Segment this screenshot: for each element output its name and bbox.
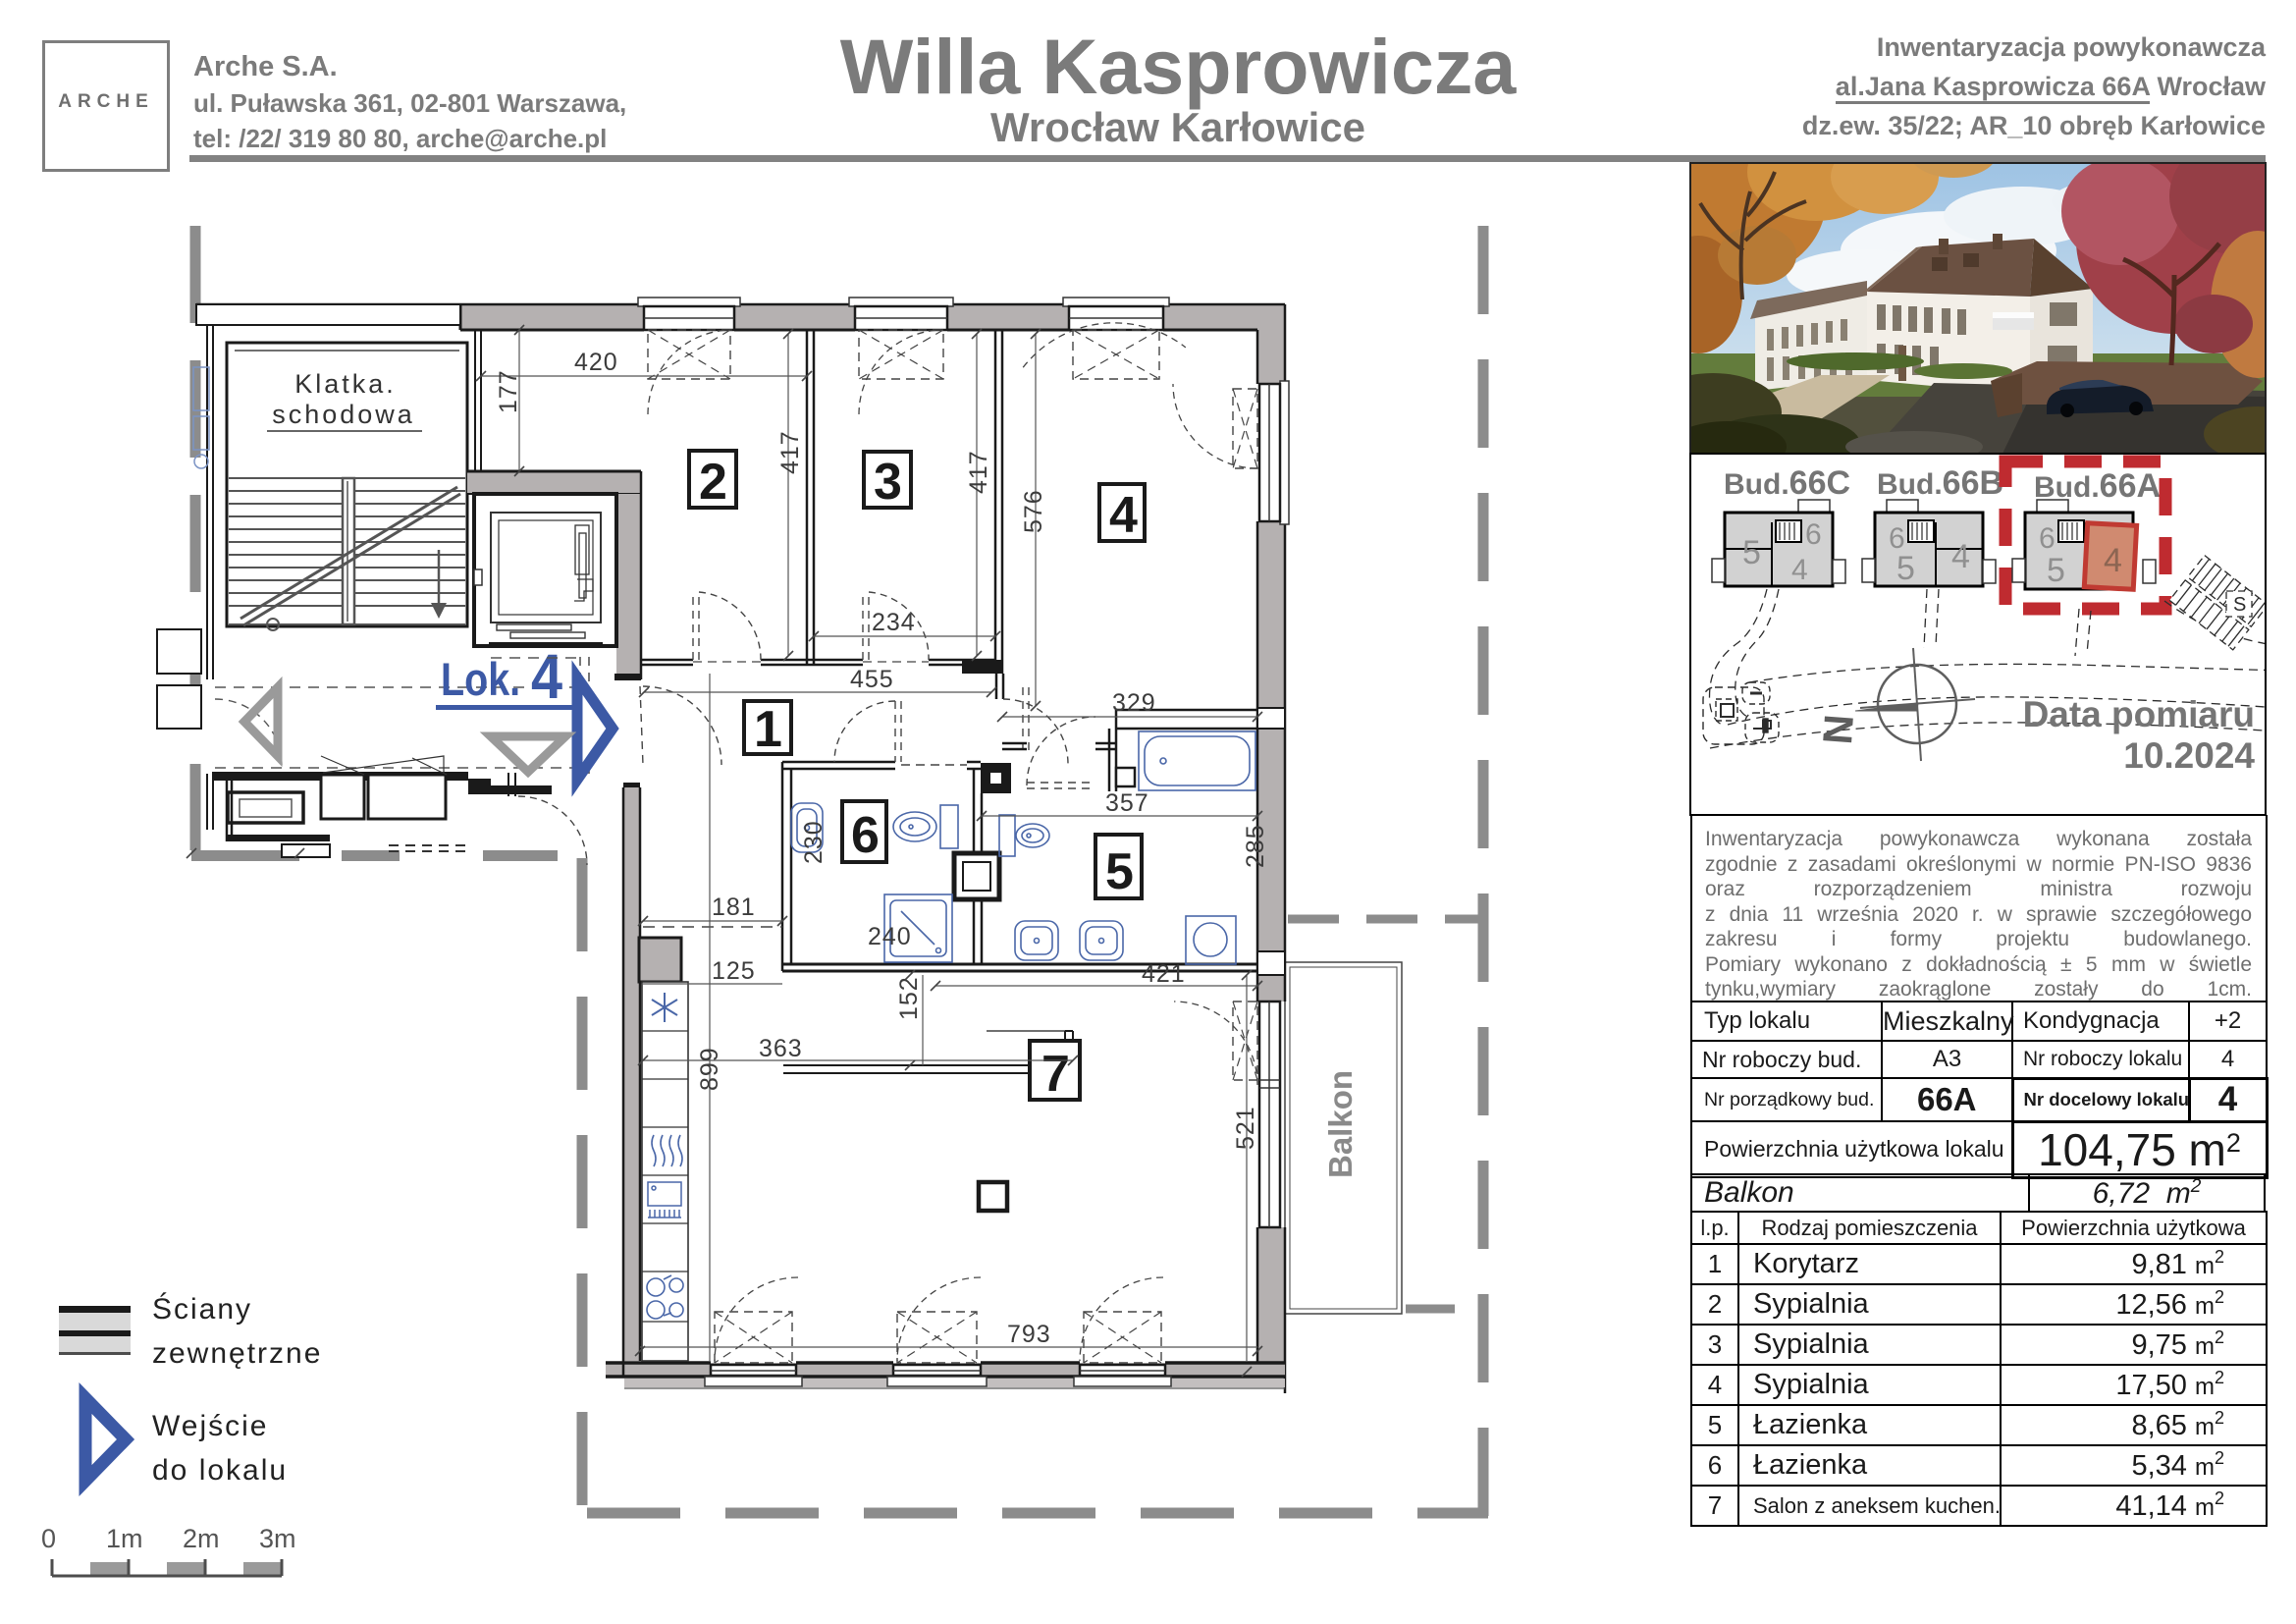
svg-text:7: 7 <box>1041 1046 1070 1103</box>
svg-text:181: 181 <box>712 893 756 921</box>
svg-text:177: 177 <box>495 369 522 413</box>
svg-text:5: 5 <box>1742 534 1761 571</box>
svg-text:285: 285 <box>1242 824 1269 868</box>
svg-text:Wejście: Wejście <box>152 1410 268 1442</box>
svg-text:Bud.66C: Bud.66C <box>1724 464 1850 502</box>
svg-text:3m: 3m <box>259 1524 296 1553</box>
svg-text:0: 0 <box>41 1524 56 1553</box>
svg-text:Ściany: Ściany <box>152 1292 252 1326</box>
svg-text:S: S <box>2233 594 2246 616</box>
svg-text:10.2024: 10.2024 <box>2123 735 2255 776</box>
svg-text:1m: 1m <box>106 1524 143 1553</box>
svg-text:357: 357 <box>1105 789 1149 817</box>
svg-text:Klatka.: Klatka. <box>294 369 397 399</box>
svg-text:455: 455 <box>850 666 894 693</box>
svg-text:Balkon: Balkon <box>1322 1070 1359 1178</box>
svg-text:417: 417 <box>965 450 992 494</box>
svg-text:4: 4 <box>1951 538 1970 575</box>
svg-text:576: 576 <box>1020 489 1047 533</box>
svg-text:521: 521 <box>1232 1106 1259 1150</box>
svg-text:Data pomiaru: Data pomiaru <box>2023 694 2255 734</box>
svg-text:4: 4 <box>1791 554 1808 586</box>
svg-text:240: 240 <box>868 923 912 950</box>
svg-text:2: 2 <box>699 454 727 511</box>
svg-text:3: 3 <box>874 454 902 511</box>
svg-text:420: 420 <box>574 349 618 376</box>
svg-text:125: 125 <box>712 957 756 985</box>
svg-text:Lok.: Lok. <box>441 655 520 706</box>
svg-text:6: 6 <box>851 807 880 864</box>
svg-text:do lokalu: do lokalu <box>152 1454 288 1487</box>
svg-text:899: 899 <box>696 1047 723 1091</box>
svg-text:4: 4 <box>531 641 562 711</box>
svg-text:417: 417 <box>776 430 804 474</box>
svg-text:N: N <box>1814 713 1862 746</box>
svg-text:234: 234 <box>872 609 916 636</box>
svg-text:152: 152 <box>895 976 923 1020</box>
svg-text:5: 5 <box>1896 550 1915 587</box>
svg-text:2m: 2m <box>183 1524 220 1553</box>
svg-text:5: 5 <box>1105 843 1134 900</box>
svg-text:4: 4 <box>2104 542 2122 579</box>
svg-text:230: 230 <box>800 820 828 864</box>
svg-text:schodowa: schodowa <box>272 400 415 429</box>
svg-text:5: 5 <box>2047 552 2065 589</box>
svg-text:zewnętrzne: zewnętrzne <box>152 1337 322 1370</box>
svg-text:793: 793 <box>1007 1321 1051 1348</box>
svg-text:1: 1 <box>754 701 782 758</box>
svg-text:421: 421 <box>1142 960 1186 988</box>
svg-text:4: 4 <box>1109 487 1138 544</box>
svg-text:329: 329 <box>1112 689 1156 717</box>
svg-text:6: 6 <box>1805 518 1822 551</box>
svg-text:6: 6 <box>2039 522 2056 555</box>
svg-text:363: 363 <box>759 1035 803 1062</box>
svg-text:Bud.66B: Bud.66B <box>1877 464 2003 502</box>
